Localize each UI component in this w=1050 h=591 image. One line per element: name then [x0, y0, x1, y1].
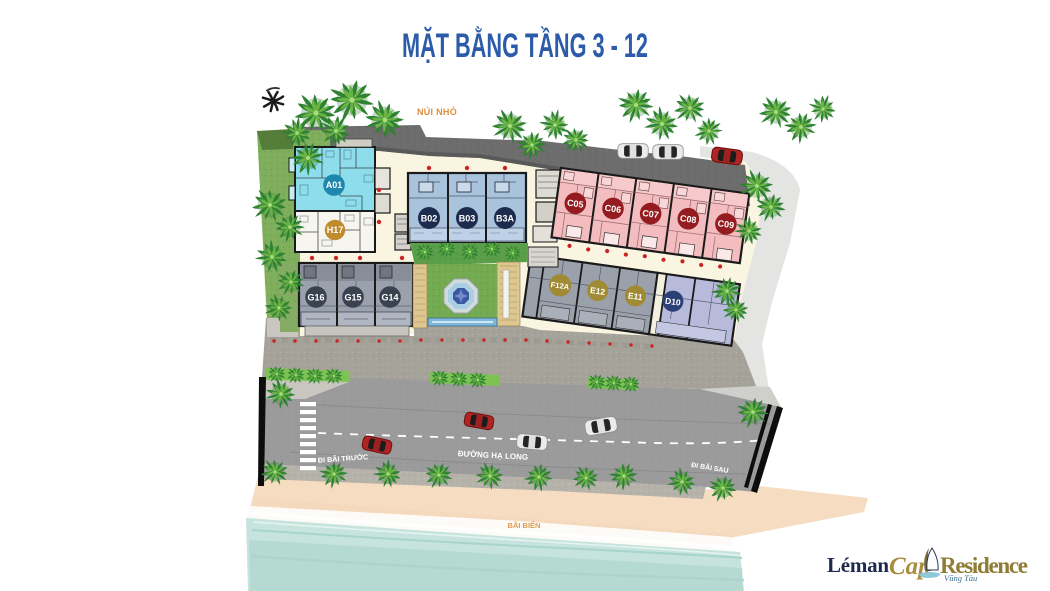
- svg-text:B03: B03: [459, 213, 476, 223]
- svg-text:G15: G15: [344, 292, 361, 302]
- svg-text:E12: E12: [589, 285, 606, 297]
- svg-text:E11: E11: [627, 290, 643, 302]
- svg-text:MẶT BẰNG TẦNG 3 - 12: MẶT BẰNG TẦNG 3 - 12: [402, 27, 648, 65]
- svg-text:Léman: Léman: [827, 553, 889, 577]
- svg-text:B3A: B3A: [496, 213, 515, 223]
- svg-text:G16: G16: [307, 292, 324, 302]
- svg-text:G14: G14: [381, 292, 398, 302]
- svg-text:B02: B02: [421, 213, 438, 223]
- svg-text:A01: A01: [326, 180, 343, 190]
- svg-text:NÚI NHỎ: NÚI NHỎ: [417, 106, 457, 117]
- svg-text:BÃI BIỂN: BÃI BIỂN: [508, 521, 541, 530]
- svg-text:Vũng Tàu: Vũng Tàu: [944, 573, 977, 583]
- svg-text:H17: H17: [327, 225, 344, 235]
